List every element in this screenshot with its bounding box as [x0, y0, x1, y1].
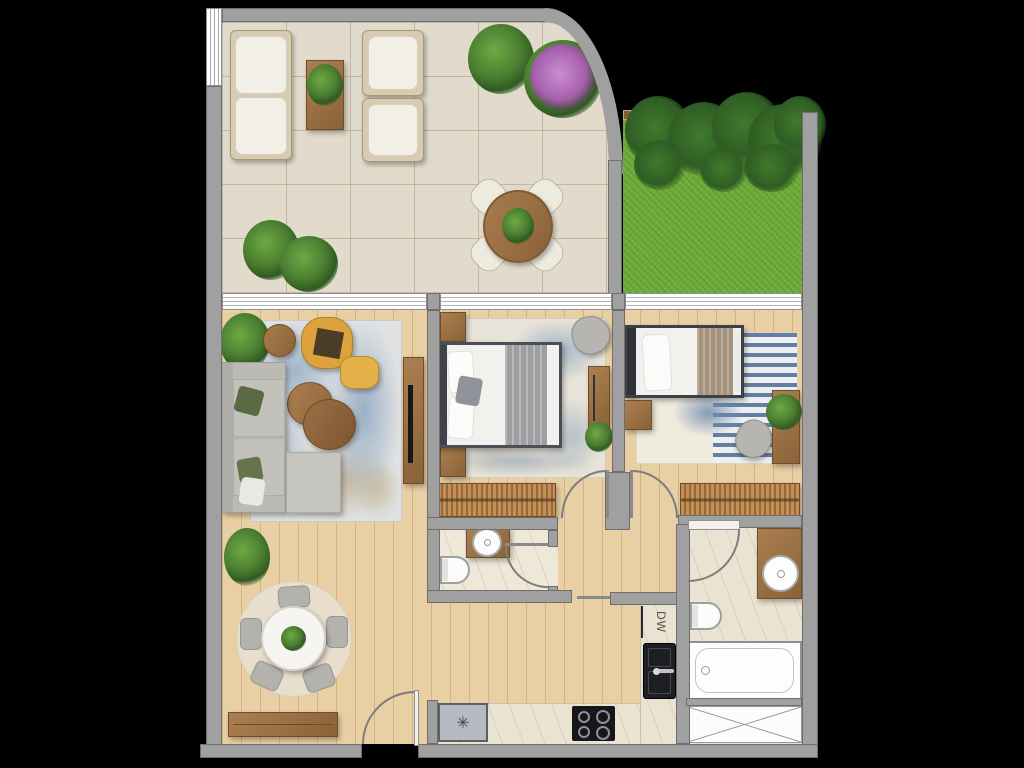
bedroom2-window — [625, 293, 802, 310]
bedroom1-window — [440, 293, 612, 310]
toilet-tank — [692, 605, 698, 627]
terrace-sofa-cushion — [235, 36, 287, 94]
nightstand — [440, 312, 466, 342]
bathroom-toilet — [690, 602, 722, 630]
bedroom2-wardrobe — [680, 483, 800, 517]
sink-drain — [777, 570, 785, 578]
bedroom2-bed — [624, 325, 744, 398]
cooktop — [572, 706, 615, 741]
bedroom2-plant — [766, 394, 802, 430]
sofa-pillow-white — [238, 476, 266, 506]
bedroom1-desk — [588, 366, 610, 428]
wall — [427, 590, 572, 603]
bed-foot-sheet — [733, 330, 741, 393]
living-side-table — [263, 324, 296, 357]
living-window — [222, 293, 427, 310]
wall — [200, 744, 362, 758]
sink-bowl — [648, 671, 671, 694]
armchair-pillow — [313, 328, 344, 359]
burner — [578, 726, 590, 738]
coffee-table — [303, 399, 356, 450]
dining-chair — [240, 618, 262, 650]
living-sofa-chaise — [286, 452, 341, 513]
entry-bench — [228, 712, 338, 737]
palm-plant — [634, 140, 686, 190]
curved-wall — [545, 8, 623, 174]
terrace-sofa-cushion — [235, 97, 287, 155]
terrace-armchair — [362, 30, 424, 96]
snowflake-icon: ✳ — [440, 705, 486, 740]
burner — [578, 711, 590, 723]
bench-seam — [233, 724, 333, 725]
bed-headboard — [627, 328, 636, 395]
sink-bowl — [648, 648, 671, 667]
wc-door — [505, 543, 548, 546]
bed-pillow — [642, 333, 673, 391]
bathroom-door — [688, 520, 740, 530]
faucet-base — [653, 668, 660, 675]
palm-plant — [744, 144, 800, 192]
dishwasher-label: DW — [643, 606, 679, 638]
toilet-tank — [442, 559, 448, 581]
burner — [596, 726, 610, 740]
burner — [596, 710, 610, 724]
bedroom2-door — [630, 470, 633, 518]
sofa-backrest — [223, 363, 233, 512]
wall — [418, 744, 818, 758]
dishwasher: DW — [645, 604, 677, 640]
wc-toilet — [440, 556, 470, 584]
wall — [427, 700, 438, 744]
dining-plant — [224, 528, 270, 586]
tv-console — [403, 357, 424, 484]
bedroom1-wardrobe — [432, 483, 556, 517]
wall — [427, 310, 440, 602]
terrace-sofa — [230, 30, 292, 160]
fridge: ✳ — [438, 703, 488, 742]
palm-plant — [700, 148, 748, 192]
shaft-void — [687, 706, 802, 743]
terrace-dining-table-plant — [502, 208, 534, 244]
kitchen-sink — [643, 643, 676, 699]
entry-door — [414, 690, 419, 746]
bedroom1-bed — [436, 342, 562, 448]
bathtub-drain — [701, 666, 710, 675]
wall — [548, 530, 558, 547]
wall — [222, 8, 548, 22]
bed-blanket — [505, 345, 547, 445]
bathroom-sink — [762, 555, 799, 592]
wall — [802, 112, 818, 758]
wc-sink — [472, 528, 502, 557]
yellow-ottoman — [340, 356, 379, 389]
bedroom1-door — [606, 470, 609, 518]
desk-edge — [593, 375, 595, 421]
bedroom1-plant — [585, 422, 613, 452]
bathtub — [687, 641, 802, 700]
wall — [427, 517, 558, 530]
terrace-armchair-cushion — [368, 104, 418, 156]
dining-chair — [326, 616, 348, 648]
nightstand — [440, 447, 466, 477]
wall — [206, 86, 222, 758]
terrace-table-plant — [307, 64, 343, 106]
bed-blanket — [697, 328, 733, 395]
wall — [686, 698, 802, 706]
tv-screen — [408, 385, 413, 463]
void-cross-icon — [688, 707, 801, 742]
bed-accent-pillow — [455, 375, 483, 407]
wall — [612, 310, 625, 472]
nightstand — [624, 400, 652, 430]
terrace-plant — [280, 236, 338, 292]
dining-table-plant — [281, 626, 306, 651]
bed-headboard — [439, 345, 447, 445]
wc-sink-drain — [484, 539, 491, 546]
kitchen-sliding-door — [577, 596, 610, 599]
wall — [608, 160, 622, 296]
terrace-armchair — [362, 98, 424, 162]
floor-plan: DW ✳ — [0, 0, 1024, 768]
terrace-armchair-cushion — [368, 36, 418, 90]
wall — [612, 293, 625, 310]
wall — [427, 293, 440, 310]
terrace-railing — [206, 8, 222, 86]
